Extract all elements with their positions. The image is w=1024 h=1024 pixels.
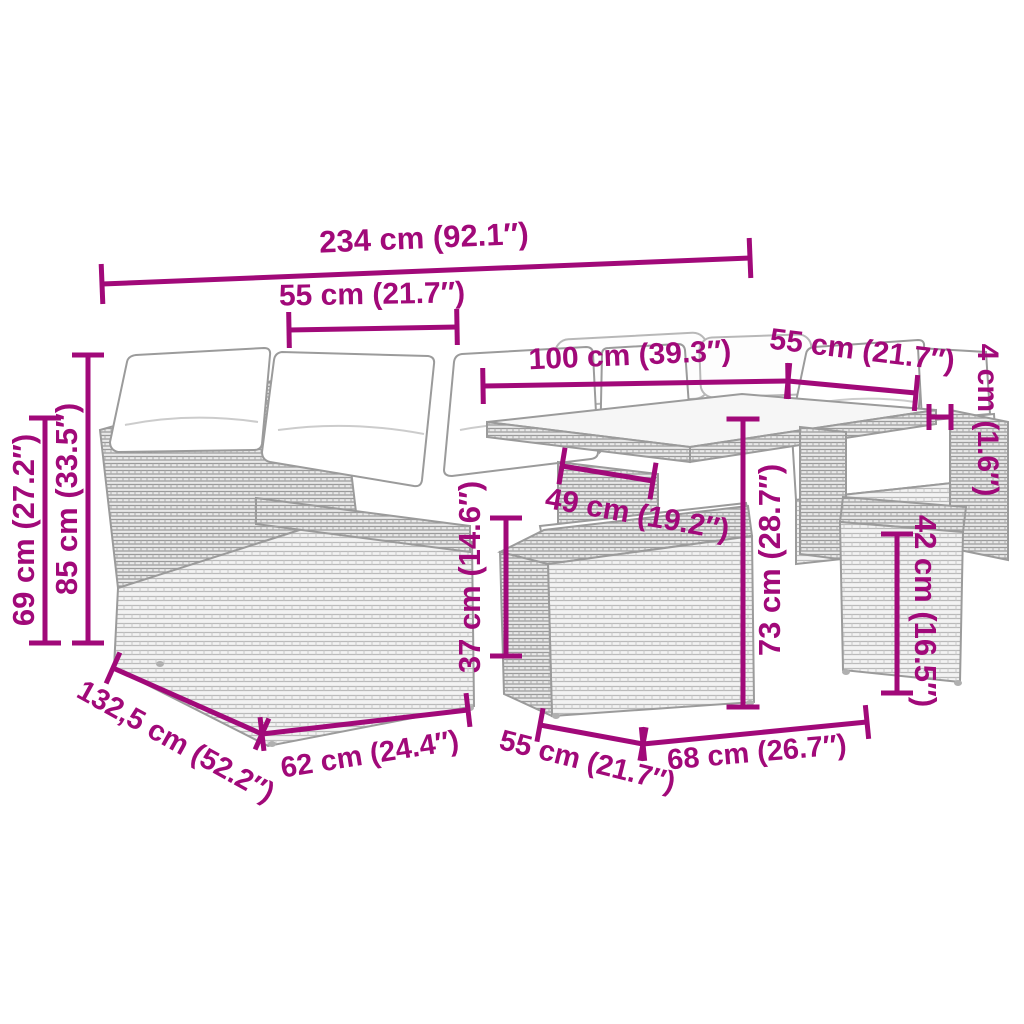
stool-front xyxy=(548,536,754,716)
dimension-line xyxy=(289,312,290,348)
dimension-front-stool-width: 55 cm (21.7″) xyxy=(496,708,678,799)
dimension-label-right-stool-height: 42 cm (16.5″) xyxy=(908,515,943,707)
diagram-canvas: 234 cm (92.1″)55 cm (21.7″)100 cm (39.3″… xyxy=(0,0,1024,1024)
dimension-label-left-seat-width: 55 cm (21.7″) xyxy=(279,276,466,312)
dimension-left-seat-width: 55 cm (21.7″) xyxy=(279,276,466,348)
table-rear-leg xyxy=(800,427,846,560)
dimension-label-front-stool-height: 37 cm (14.6″) xyxy=(452,481,487,673)
dimension-label-back-height: 85 cm (33.5″) xyxy=(49,403,84,595)
dimension-line xyxy=(483,368,484,404)
dimension-line xyxy=(865,705,868,739)
furniture-layer xyxy=(100,332,1008,747)
dimension-diagram: 234 cm (92.1″)55 cm (21.7″)100 cm (39.3″… xyxy=(0,0,1024,1024)
dimension-back-height: 85 cm (33.5″) xyxy=(49,355,104,643)
dimension-label-tabletop-thickness: 4 cm (1.6″) xyxy=(971,344,1004,497)
dimension-line xyxy=(457,309,458,345)
dimension-label-table-height: 73 cm (28.7″) xyxy=(752,464,787,656)
dimension-line xyxy=(641,727,644,761)
stool-front xyxy=(840,522,963,682)
dimension-table-module-width: 68 cm (26.7″) xyxy=(641,705,868,776)
dimension-label-total-width: 234 cm (92.1″) xyxy=(318,216,529,260)
dimension-label-table-module-width: 68 cm (26.7″) xyxy=(666,729,848,777)
dimension-line xyxy=(914,375,917,411)
dimension-line xyxy=(101,264,103,304)
right-stool xyxy=(840,497,966,682)
back-pillow xyxy=(110,348,270,452)
dimension-line xyxy=(289,327,457,330)
dimension-line xyxy=(786,363,789,399)
dimension-label-arm-height: 69 cm (27.2″) xyxy=(6,434,41,626)
dimension-line xyxy=(749,238,751,278)
